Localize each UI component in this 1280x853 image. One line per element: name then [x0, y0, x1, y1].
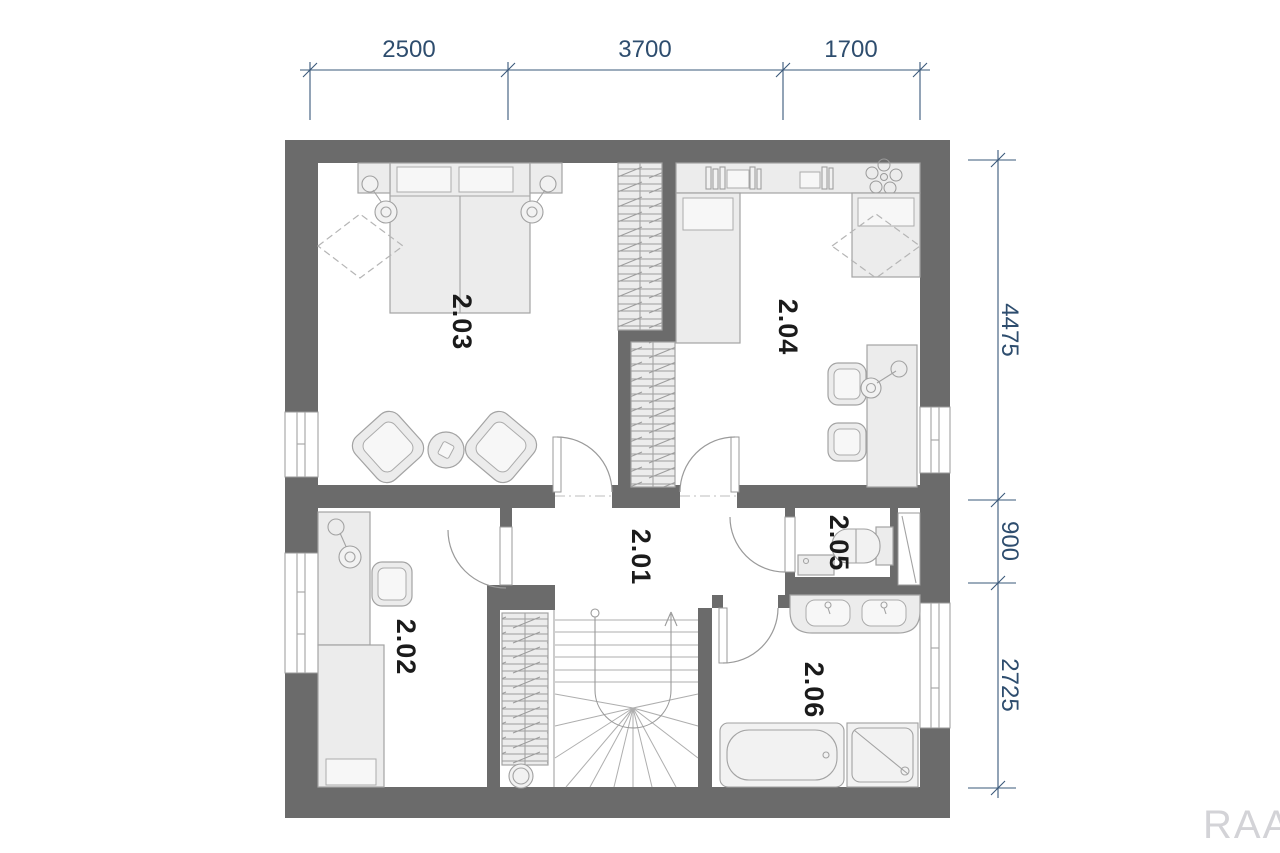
wall-left — [285, 140, 318, 818]
wall-top — [285, 140, 950, 163]
desk-chair — [828, 363, 866, 405]
watermark: RAA — [1203, 803, 1280, 847]
wall-bottom — [285, 787, 950, 818]
dimension-chain-right: 4475 900 2725 — [968, 150, 1023, 798]
dim-right-1: 4475 — [996, 303, 1023, 356]
floor-plan-canvas: 2.01 2.02 2.03 2.04 2.05 2.06 2500 3700 … — [0, 0, 1280, 853]
door-leaf-203 — [553, 437, 561, 492]
door-arc-202 — [448, 530, 506, 588]
door-leaf-204 — [731, 437, 739, 492]
window-right-2 — [920, 603, 950, 728]
desk-chair — [828, 423, 866, 461]
door-leaf-room-202 — [500, 527, 512, 585]
armchair — [347, 406, 429, 488]
door-arc-205 — [730, 517, 785, 572]
pillow — [683, 198, 733, 230]
wall-mid-jog — [618, 330, 676, 342]
room-label-206: 2.06 — [799, 662, 829, 719]
desk-chair — [372, 562, 412, 606]
wall-hall-south-left — [487, 585, 555, 610]
dim-top-1: 2500 — [382, 36, 435, 63]
window-left-2 — [285, 553, 318, 673]
shower — [847, 723, 918, 787]
room-202-furniture — [318, 512, 554, 788]
pillow — [459, 167, 513, 192]
room-205-fixtures — [798, 513, 920, 585]
room-label-203: 2.03 — [447, 294, 477, 351]
dimension-chain-top: 2500 3700 1700 — [300, 36, 930, 120]
desk — [318, 512, 370, 645]
door-leaf-206 — [719, 608, 727, 663]
dim-right-3: 2725 — [996, 658, 1023, 711]
wardrobe — [502, 613, 548, 765]
wall-hall-north — [318, 485, 920, 508]
duct-shaft — [898, 513, 920, 585]
wardrobe — [618, 163, 662, 330]
wardrobe — [631, 342, 675, 487]
washing-machine — [509, 764, 533, 788]
door-arc-203 — [557, 437, 612, 492]
pillow — [397, 167, 451, 192]
room-203-furniture — [318, 163, 662, 488]
window-right-1 — [920, 407, 950, 473]
room-label-201: 2.01 — [626, 529, 656, 586]
dim-right-2: 900 — [996, 521, 1023, 561]
room-label-204: 2.04 — [773, 299, 803, 356]
dim-top-3: 1700 — [824, 36, 877, 63]
wall-mid-lower — [618, 342, 631, 485]
winder-treads — [555, 694, 698, 787]
opening-room-206 — [723, 595, 778, 608]
staircase — [555, 609, 698, 787]
door-arc-204 — [680, 437, 735, 492]
armchair — [460, 406, 542, 488]
door-arc-206 — [723, 608, 778, 663]
sink — [862, 600, 906, 626]
wall-stairs-east — [698, 608, 712, 787]
window-left-1 — [285, 412, 318, 477]
bathtub — [720, 723, 844, 787]
door-leaf-room-205 — [785, 517, 795, 572]
room-label-202: 2.02 — [391, 619, 421, 676]
dim-top-2: 3700 — [618, 36, 671, 63]
room-label-205: 2.05 — [824, 515, 854, 572]
pillow — [326, 759, 376, 785]
sink — [806, 600, 850, 626]
wall-niche-west — [487, 610, 500, 787]
wall-mid-upper — [662, 163, 676, 342]
